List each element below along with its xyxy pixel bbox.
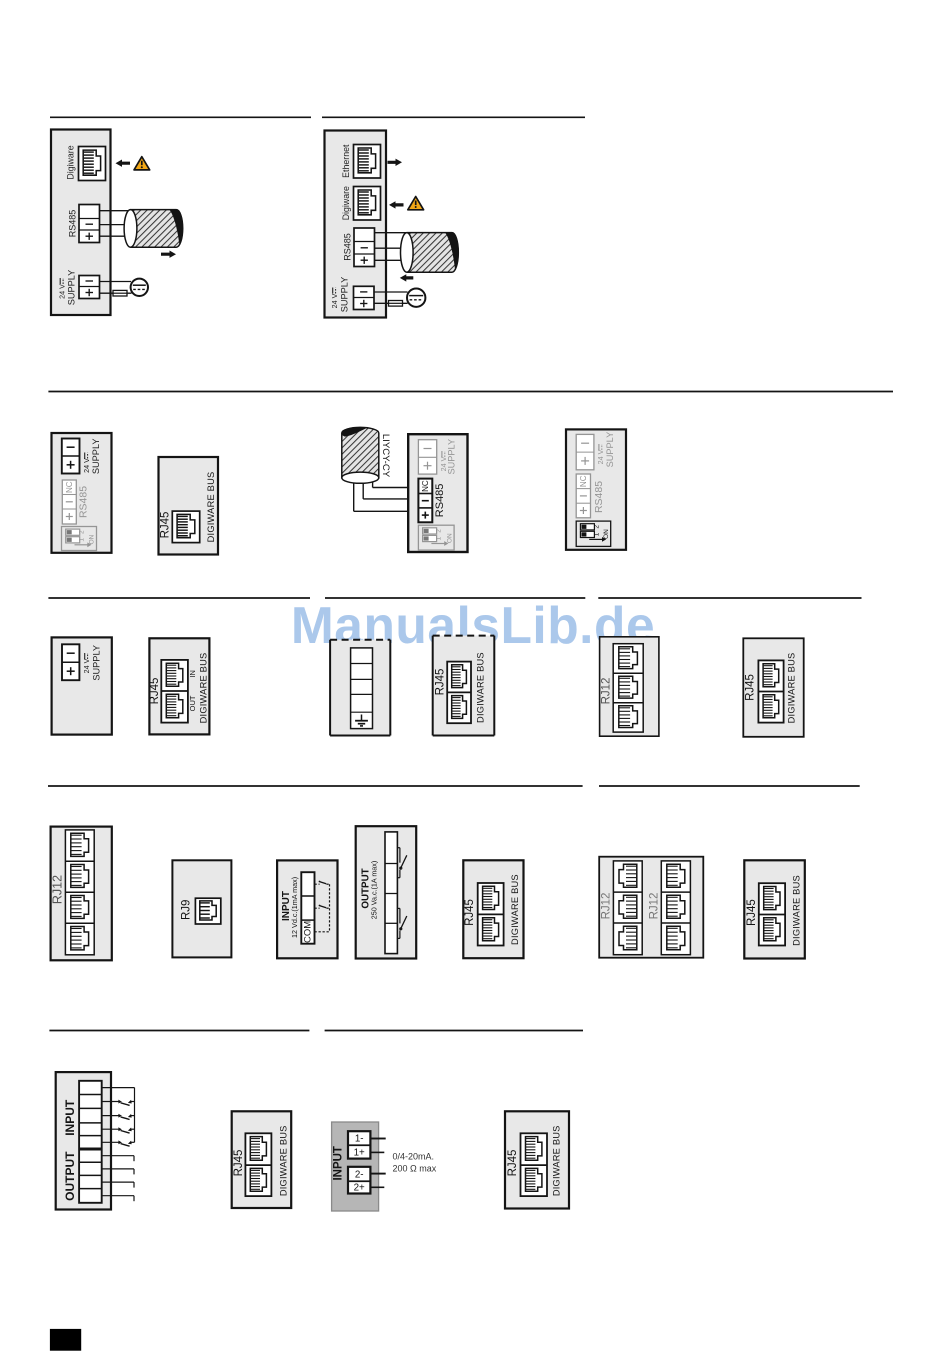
svg-text:OUTPUT: OUTPUT [63, 1151, 77, 1201]
svg-text:Digiware: Digiware [66, 145, 76, 179]
svg-text:1: 1 [436, 536, 443, 540]
svg-text:RS485: RS485 [343, 233, 353, 261]
svg-text:NC: NC [421, 480, 430, 492]
svg-text:200 Ω max: 200 Ω max [393, 1164, 437, 1174]
svg-text:OUT: OUT [188, 695, 197, 711]
svg-text:SUPPLY: SUPPLY [92, 645, 102, 681]
svg-text:DIGIWARE BUS: DIGIWARE BUS [206, 472, 216, 543]
svg-text:RJ12: RJ12 [601, 678, 613, 705]
svg-text:IN: IN [188, 670, 197, 678]
svg-text:1: 1 [79, 538, 86, 542]
svg-text:SUPPLY: SUPPLY [446, 439, 456, 475]
svg-text:1-: 1- [355, 1134, 364, 1145]
svg-text:RJ12: RJ12 [51, 875, 65, 904]
svg-text:INPUT: INPUT [333, 1146, 345, 1181]
svg-text:RJ45: RJ45 [745, 674, 757, 701]
svg-text:ON: ON [89, 534, 96, 544]
svg-text:INPUT: INPUT [63, 1099, 77, 1136]
svg-text:Digiware: Digiware [341, 186, 351, 220]
svg-text:250 Va.c.(1A max): 250 Va.c.(1A max) [370, 861, 379, 920]
svg-text:24 V: 24 V [596, 449, 605, 464]
svg-text:Ethernet: Ethernet [341, 144, 351, 178]
svg-text:2: 2 [593, 525, 600, 529]
svg-text:ON: ON [446, 533, 453, 543]
svg-text:2: 2 [436, 529, 443, 533]
svg-text:DIGIWARE BUS: DIGIWARE BUS [476, 652, 486, 723]
svg-text:1: 1 [593, 532, 600, 536]
svg-text:SUPPLY: SUPPLY [340, 277, 350, 313]
svg-text:LIYCY-CY: LIYCY-CY [380, 434, 391, 478]
svg-text:2+: 2+ [354, 1183, 365, 1194]
svg-text:ON: ON [603, 529, 610, 539]
svg-text:SUPPLY: SUPPLY [91, 439, 101, 475]
svg-text:0/4-20mA.: 0/4-20mA. [393, 1151, 435, 1161]
svg-text:NC: NC [579, 475, 588, 487]
svg-text:SUPPLY: SUPPLY [605, 432, 615, 468]
svg-text:24 V: 24 V [330, 293, 339, 308]
svg-text:DIGIWARE BUS: DIGIWARE BUS [279, 1125, 289, 1196]
svg-text:RJ45: RJ45 [435, 669, 447, 696]
svg-text:DIGIWARE BUS: DIGIWARE BUS [791, 875, 801, 946]
svg-text:SUPPLY: SUPPLY [66, 270, 76, 306]
svg-text:RJ12: RJ12 [648, 893, 660, 920]
svg-text:2-: 2- [355, 1169, 364, 1180]
svg-text:RJ45: RJ45 [160, 512, 172, 539]
svg-text:RJ45: RJ45 [149, 678, 161, 705]
svg-text:RS485: RS485 [68, 210, 78, 238]
svg-text:1+: 1+ [354, 1147, 365, 1158]
svg-text:12 Vd.c.(1mA max): 12 Vd.c.(1mA max) [290, 877, 299, 938]
svg-text:DIGIWARE BUS: DIGIWARE BUS [199, 653, 209, 724]
svg-text:DIGIWARE BUS: DIGIWARE BUS [787, 653, 797, 724]
svg-text:NC: NC [65, 481, 74, 493]
svg-text:RJ12: RJ12 [601, 893, 613, 920]
svg-text:RJ9: RJ9 [181, 900, 193, 920]
svg-text:RJ45: RJ45 [464, 899, 476, 926]
svg-text:RS485: RS485 [78, 486, 90, 518]
svg-text:24 V: 24 V [82, 458, 91, 473]
svg-text:24 V: 24 V [82, 658, 91, 673]
svg-text:24 V: 24 V [57, 284, 66, 299]
svg-text:RJ45: RJ45 [746, 899, 758, 926]
svg-text:RJ45: RJ45 [507, 1150, 519, 1177]
svg-text:DIGIWARE BUS: DIGIWARE BUS [510, 874, 520, 945]
svg-text:2: 2 [79, 530, 86, 534]
svg-text:COM: COM [302, 921, 313, 943]
svg-text:RJ45: RJ45 [233, 1150, 245, 1177]
svg-text:RS485: RS485 [593, 481, 605, 513]
svg-text:RS485: RS485 [434, 484, 446, 518]
svg-text:DIGIWARE BUS: DIGIWARE BUS [552, 1125, 562, 1196]
